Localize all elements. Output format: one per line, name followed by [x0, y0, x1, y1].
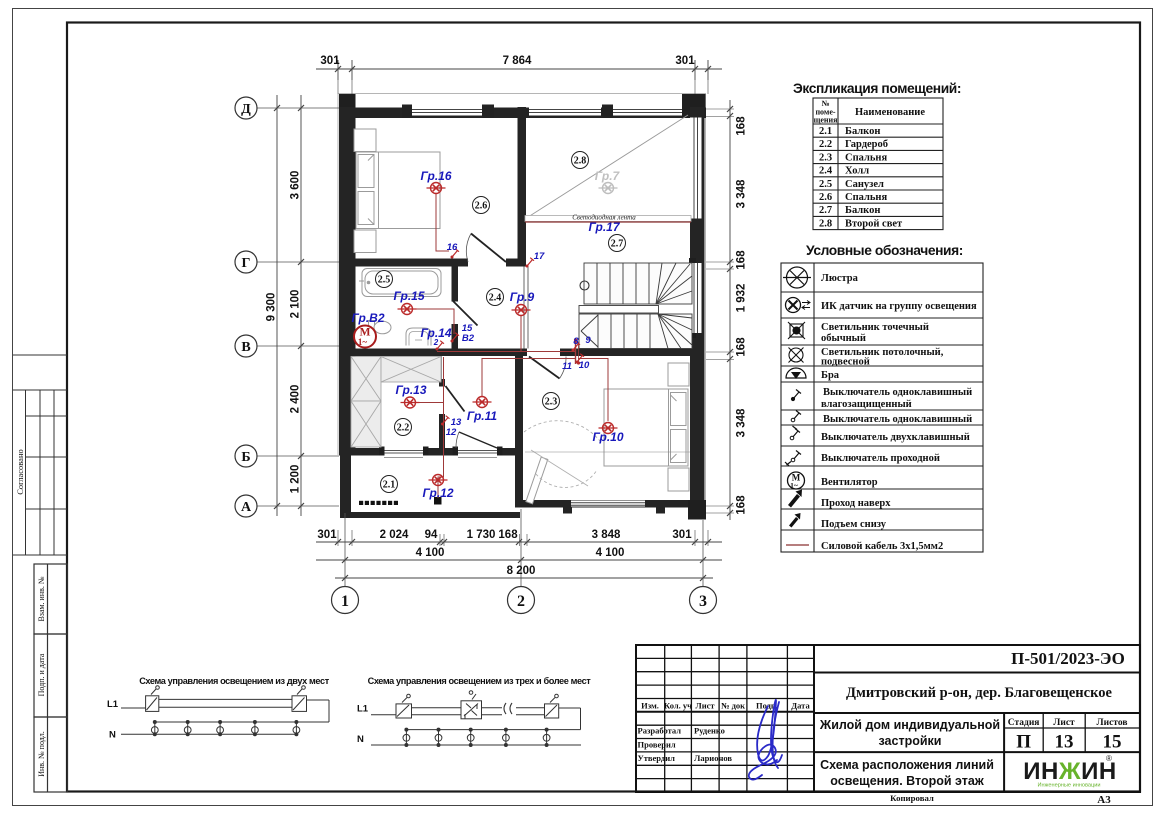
svg-text:П: П: [1016, 732, 1031, 753]
svg-text:Балкон: Балкон: [845, 126, 880, 137]
svg-text:Изм.: Изм.: [641, 701, 659, 711]
svg-text:освещения. Второй этаж: освещения. Второй этаж: [830, 774, 984, 788]
svg-text:168: 168: [736, 250, 748, 270]
svg-text:Спальня: Спальня: [845, 192, 887, 203]
svg-text:Д: Д: [241, 102, 251, 117]
svg-text:Кол. уч: Кол. уч: [664, 701, 692, 711]
svg-text:Копировал: Копировал: [890, 793, 934, 803]
svg-text:А: А: [241, 500, 252, 515]
svg-text:щения: щения: [814, 116, 839, 125]
svg-text:Б: Б: [241, 450, 250, 465]
svg-text:влагозащищенный: влагозащищенный: [821, 399, 912, 410]
svg-text:Инженерные инновации: Инженерные инновации: [1038, 783, 1101, 789]
svg-text:3 348: 3 348: [736, 408, 748, 437]
svg-text:Условные обозначения:: Условные обозначения:: [806, 243, 963, 258]
svg-text:Гардероб: Гардероб: [845, 139, 888, 150]
svg-text:Наименование: Наименование: [855, 107, 925, 118]
svg-text:1: 1: [341, 593, 349, 610]
svg-text:Выключатель двухклавишный: Выключатель двухклавишный: [821, 432, 970, 443]
svg-text:®: ®: [1106, 754, 1112, 763]
svg-text:7 864: 7 864: [503, 55, 532, 67]
svg-text:ИНЖИН: ИНЖИН: [1023, 758, 1116, 785]
svg-text:Утвердил: Утвердил: [638, 753, 676, 763]
svg-text:N: N: [357, 734, 364, 745]
svg-text:301: 301: [320, 55, 340, 67]
svg-text:Бра: Бра: [821, 370, 840, 381]
svg-text:Стадия: Стадия: [1008, 718, 1040, 728]
svg-text:Люстра: Люстра: [821, 273, 859, 284]
svg-text:Гр.В2: Гр.В2: [351, 311, 384, 325]
svg-text:Г: Г: [242, 256, 251, 271]
svg-text:1~: 1~: [790, 481, 798, 490]
svg-text:15: 15: [1103, 732, 1122, 753]
svg-text:Жилой дом индивидуальной: Жилой дом индивидуальной: [819, 718, 1000, 732]
svg-text:Ларионов: Ларионов: [694, 753, 732, 763]
svg-text:Второй свет: Второй свет: [845, 218, 903, 229]
svg-text:2.6: 2.6: [819, 192, 832, 203]
svg-text:Выключатель проходной: Выключатель проходной: [821, 453, 940, 464]
svg-text:2: 2: [517, 593, 525, 610]
svg-text:13: 13: [1055, 732, 1074, 753]
svg-text:Светильник точечный: Светильник точечный: [821, 322, 929, 333]
svg-text:№ док: № док: [721, 701, 745, 711]
svg-text:Схема управления освещением из: Схема управления освещением из двух мест: [139, 676, 330, 686]
svg-text:168: 168: [498, 529, 518, 541]
svg-text:обычный: обычный: [821, 333, 866, 344]
svg-text:301: 301: [675, 55, 695, 67]
svg-text:Гр.13: Гр.13: [395, 383, 426, 397]
svg-text:L1: L1: [107, 699, 119, 710]
svg-text:подвесной: подвесной: [821, 357, 870, 368]
svg-text:2 024: 2 024: [380, 529, 409, 541]
svg-text:16: 16: [447, 242, 458, 253]
svg-text:9 300: 9 300: [266, 293, 278, 322]
svg-text:Холл: Холл: [845, 166, 869, 177]
svg-text:N: N: [109, 730, 116, 741]
svg-text:12: 12: [446, 427, 457, 438]
svg-text:9: 9: [585, 335, 591, 346]
svg-text:Взам. инв. №: Взам. инв. №: [37, 576, 46, 621]
svg-text:3: 3: [699, 593, 707, 610]
svg-text:1~: 1~: [358, 337, 368, 347]
svg-text:4 100: 4 100: [596, 547, 625, 559]
svg-text:А3: А3: [1097, 794, 1111, 806]
svg-text:2.4: 2.4: [489, 293, 502, 304]
svg-text:3 600: 3 600: [290, 171, 302, 200]
svg-text:Гр.9: Гр.9: [510, 290, 535, 304]
svg-text:168: 168: [736, 337, 748, 357]
svg-text:10: 10: [579, 360, 590, 371]
svg-text:Санузел: Санузел: [845, 179, 884, 190]
svg-text:застройки: застройки: [879, 734, 942, 748]
svg-text:Схема управления освещением из: Схема управления освещением из трех и бо…: [368, 676, 592, 686]
svg-text:168: 168: [736, 495, 748, 515]
svg-text:1 200: 1 200: [290, 465, 302, 494]
svg-text:Разработал: Разработал: [638, 726, 682, 736]
svg-text:Лист: Лист: [1053, 718, 1075, 728]
svg-text:2.3: 2.3: [819, 152, 832, 163]
svg-text:Гр.15: Гр.15: [393, 289, 424, 303]
svg-text:2.3: 2.3: [545, 397, 558, 408]
svg-text:2.1: 2.1: [383, 480, 396, 491]
svg-text:2.2: 2.2: [819, 139, 832, 150]
svg-text:2.6: 2.6: [475, 201, 488, 212]
svg-text:Гр.7: Гр.7: [595, 169, 621, 183]
svg-text:Руденко: Руденко: [694, 726, 725, 736]
svg-text:2.5: 2.5: [819, 179, 832, 190]
svg-text:Проход наверх: Проход наверх: [821, 498, 891, 509]
svg-text:Лист: Лист: [695, 701, 715, 711]
svg-text:Спальня: Спальня: [845, 152, 887, 163]
svg-text:Согласовано: Согласовано: [15, 449, 25, 494]
svg-text:1 932: 1 932: [736, 284, 748, 313]
svg-text:ИК датчик на группу освещения: ИК датчик на группу освещения: [821, 301, 977, 312]
svg-text:Выключатель одноклавишный: Выключатель одноклавишный: [823, 387, 972, 398]
svg-text:Балкон: Балкон: [845, 205, 880, 216]
svg-text:8 200: 8 200: [507, 565, 536, 577]
svg-text:2.7: 2.7: [819, 205, 832, 216]
svg-text:Проверил: Проверил: [638, 739, 676, 749]
svg-text:Инв. № подл.: Инв. № подл.: [37, 731, 46, 777]
svg-text:17: 17: [534, 251, 545, 262]
svg-text:1 730: 1 730: [467, 529, 496, 541]
svg-text:2.1: 2.1: [819, 126, 832, 137]
svg-text:Листов: Листов: [1097, 718, 1128, 728]
svg-text:2 400: 2 400: [290, 385, 302, 414]
svg-text:2.8: 2.8: [819, 218, 832, 229]
svg-text:3 848: 3 848: [592, 529, 621, 541]
svg-text:Гр.10: Гр.10: [592, 430, 623, 444]
svg-text:2 100: 2 100: [290, 290, 302, 319]
svg-text:Вентилятор: Вентилятор: [821, 477, 878, 488]
svg-text:2.4: 2.4: [819, 166, 833, 177]
svg-text:2.7: 2.7: [611, 239, 624, 250]
svg-text:Дата: Дата: [791, 701, 810, 711]
svg-text:Гр.11: Гр.11: [467, 409, 498, 423]
svg-text:2: 2: [433, 338, 439, 347]
svg-text:11: 11: [562, 361, 572, 372]
svg-text:Силовой кабель 3х1,5мм2: Силовой кабель 3х1,5мм2: [821, 541, 943, 552]
svg-text:3 348: 3 348: [736, 179, 748, 208]
svg-text:Подп. и дата: Подп. и дата: [37, 653, 46, 696]
svg-text:168: 168: [736, 116, 748, 136]
svg-text:L1: L1: [357, 704, 369, 715]
svg-text:Гр.16: Гр.16: [420, 169, 451, 183]
svg-text:301: 301: [672, 529, 692, 541]
svg-text:Экспликация помещений:: Экспликация помещений:: [793, 81, 961, 96]
svg-text:2.2: 2.2: [397, 423, 410, 434]
svg-text:8: 8: [573, 336, 579, 347]
svg-text:Гр.12: Гр.12: [422, 486, 453, 500]
svg-text:Гр.17: Гр.17: [588, 220, 620, 234]
svg-text:2.8: 2.8: [574, 156, 587, 167]
svg-text:Выключатель одноклавишный: Выключатель одноклавишный: [823, 414, 972, 425]
svg-text:П-501/2023-ЭО: П-501/2023-ЭО: [1011, 649, 1125, 668]
svg-text:Подъем снизу: Подъем снизу: [821, 519, 887, 530]
svg-text:94: 94: [425, 529, 438, 541]
svg-text:Дмитровский р-он, дер. Благове: Дмитровский р-он, дер. Благовещенское: [846, 685, 1112, 701]
svg-text:4 100: 4 100: [416, 547, 445, 559]
svg-text:Схема расположения линий: Схема расположения линий: [820, 758, 994, 772]
svg-text:2.5: 2.5: [378, 275, 391, 286]
svg-text:В: В: [241, 340, 250, 355]
svg-text:В2: В2: [462, 333, 475, 344]
svg-text:301: 301: [317, 529, 337, 541]
